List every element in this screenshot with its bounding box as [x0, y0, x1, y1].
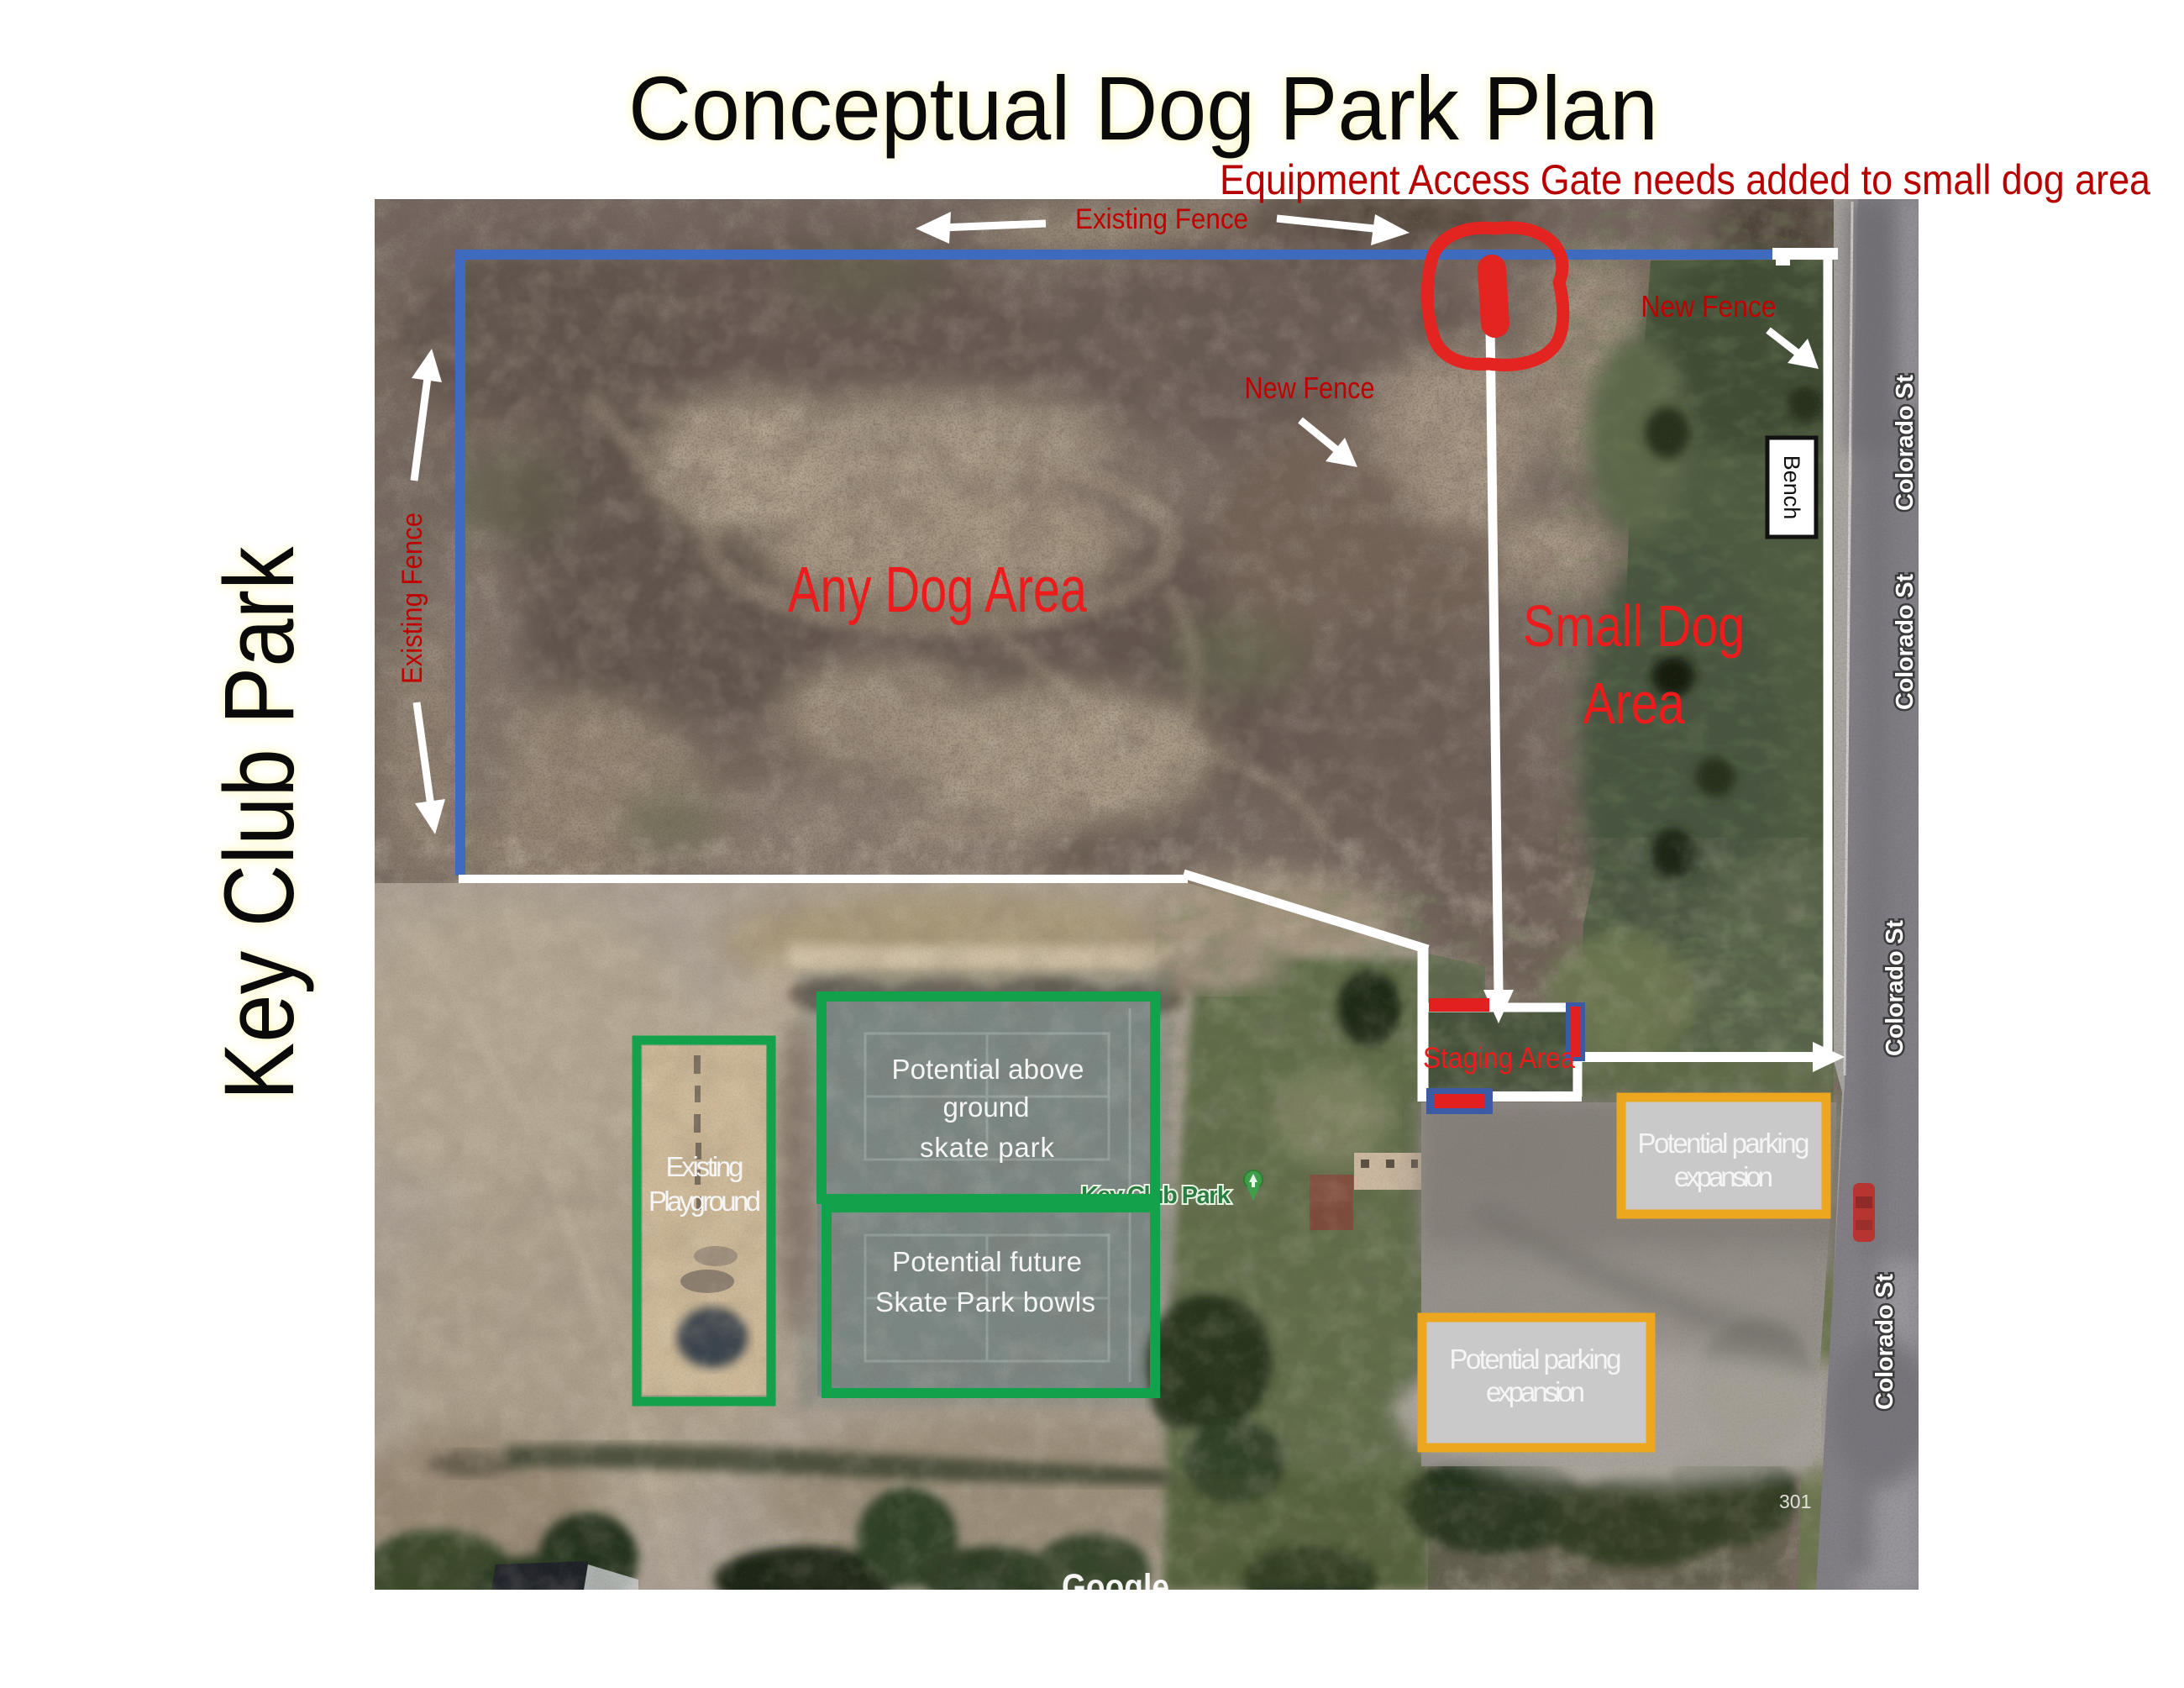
svg-text:Conceptual Dog Park Plan: Conceptual Dog Park Plan [628, 57, 1658, 159]
svg-text:skate park: skate park [920, 1132, 1055, 1163]
svg-text:Colorado St: Colorado St [1882, 920, 1908, 1056]
svg-text:Colorado St: Colorado St [1892, 375, 1919, 511]
svg-text:Any Dog Area: Any Dog Area [788, 554, 1087, 626]
svg-text:Area: Area [1583, 670, 1685, 736]
svg-text:Google: Google [1062, 1567, 1169, 1607]
svg-text:ground: ground [943, 1091, 1030, 1123]
svg-text:New Fence: New Fence [1641, 289, 1777, 323]
svg-text:expansion: expansion [1486, 1376, 1585, 1407]
svg-text:301: 301 [1779, 1491, 1811, 1512]
svg-text:Existing Fence: Existing Fence [1075, 203, 1248, 235]
svg-text:Staging Area: Staging Area [1423, 1042, 1575, 1075]
svg-text:Potential parking: Potential parking [1450, 1344, 1622, 1375]
svg-text:Equipment Access Gate needs ad: Equipment Access Gate needs added to sma… [1220, 156, 2150, 203]
svg-text:Key Club Park: Key Club Park [204, 546, 315, 1101]
svg-text:expansion: expansion [1674, 1161, 1773, 1192]
svg-text:Colorado St: Colorado St [1872, 1274, 1898, 1410]
svg-text:Colorado St: Colorado St [1892, 574, 1919, 710]
svg-text:New Fence: New Fence [1245, 371, 1375, 405]
svg-text:Potential above: Potential above [892, 1054, 1084, 1085]
svg-text:Small Dog: Small Dog [1523, 593, 1745, 659]
svg-text:Bench: Bench [1779, 455, 1804, 520]
svg-text:Existing Fence: Existing Fence [396, 513, 428, 684]
svg-text:Existing: Existing [666, 1151, 744, 1182]
svg-text:Playground: Playground [648, 1186, 761, 1217]
svg-text:Skate Park bowls: Skate Park bowls [875, 1286, 1095, 1317]
svg-text:Potential parking: Potential parking [1638, 1128, 1810, 1159]
svg-text:Potential future: Potential future [892, 1246, 1082, 1277]
